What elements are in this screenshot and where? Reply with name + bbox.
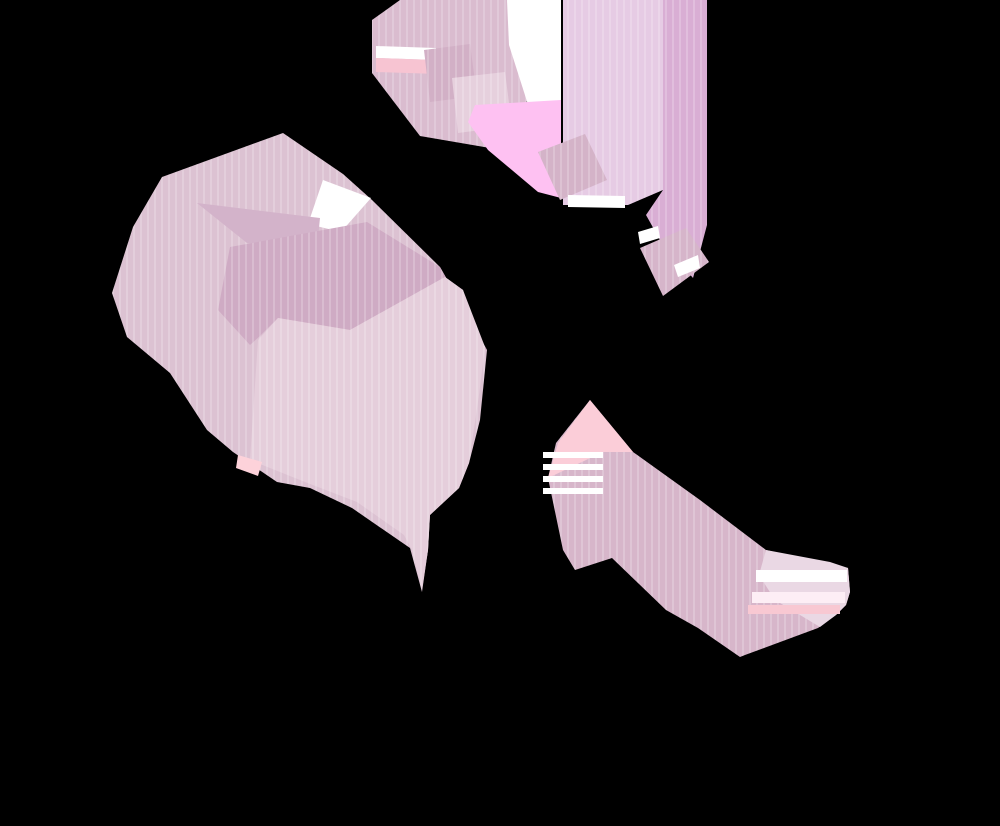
slab-end-white-stripe-1 [756, 570, 847, 582]
slab-end-salmon-stripe [748, 605, 840, 614]
slab-white-strip-2 [543, 464, 603, 470]
slab-white-strip-3 [543, 476, 603, 482]
slab-white-strip-1 [543, 452, 603, 458]
abstract-artwork-stage [0, 0, 1000, 826]
slab-end-white-stripe-2 [752, 592, 845, 603]
slab-white-strip-4 [543, 488, 603, 494]
artwork-canvas [0, 0, 1000, 826]
white-sliver-below-third [568, 195, 625, 208]
